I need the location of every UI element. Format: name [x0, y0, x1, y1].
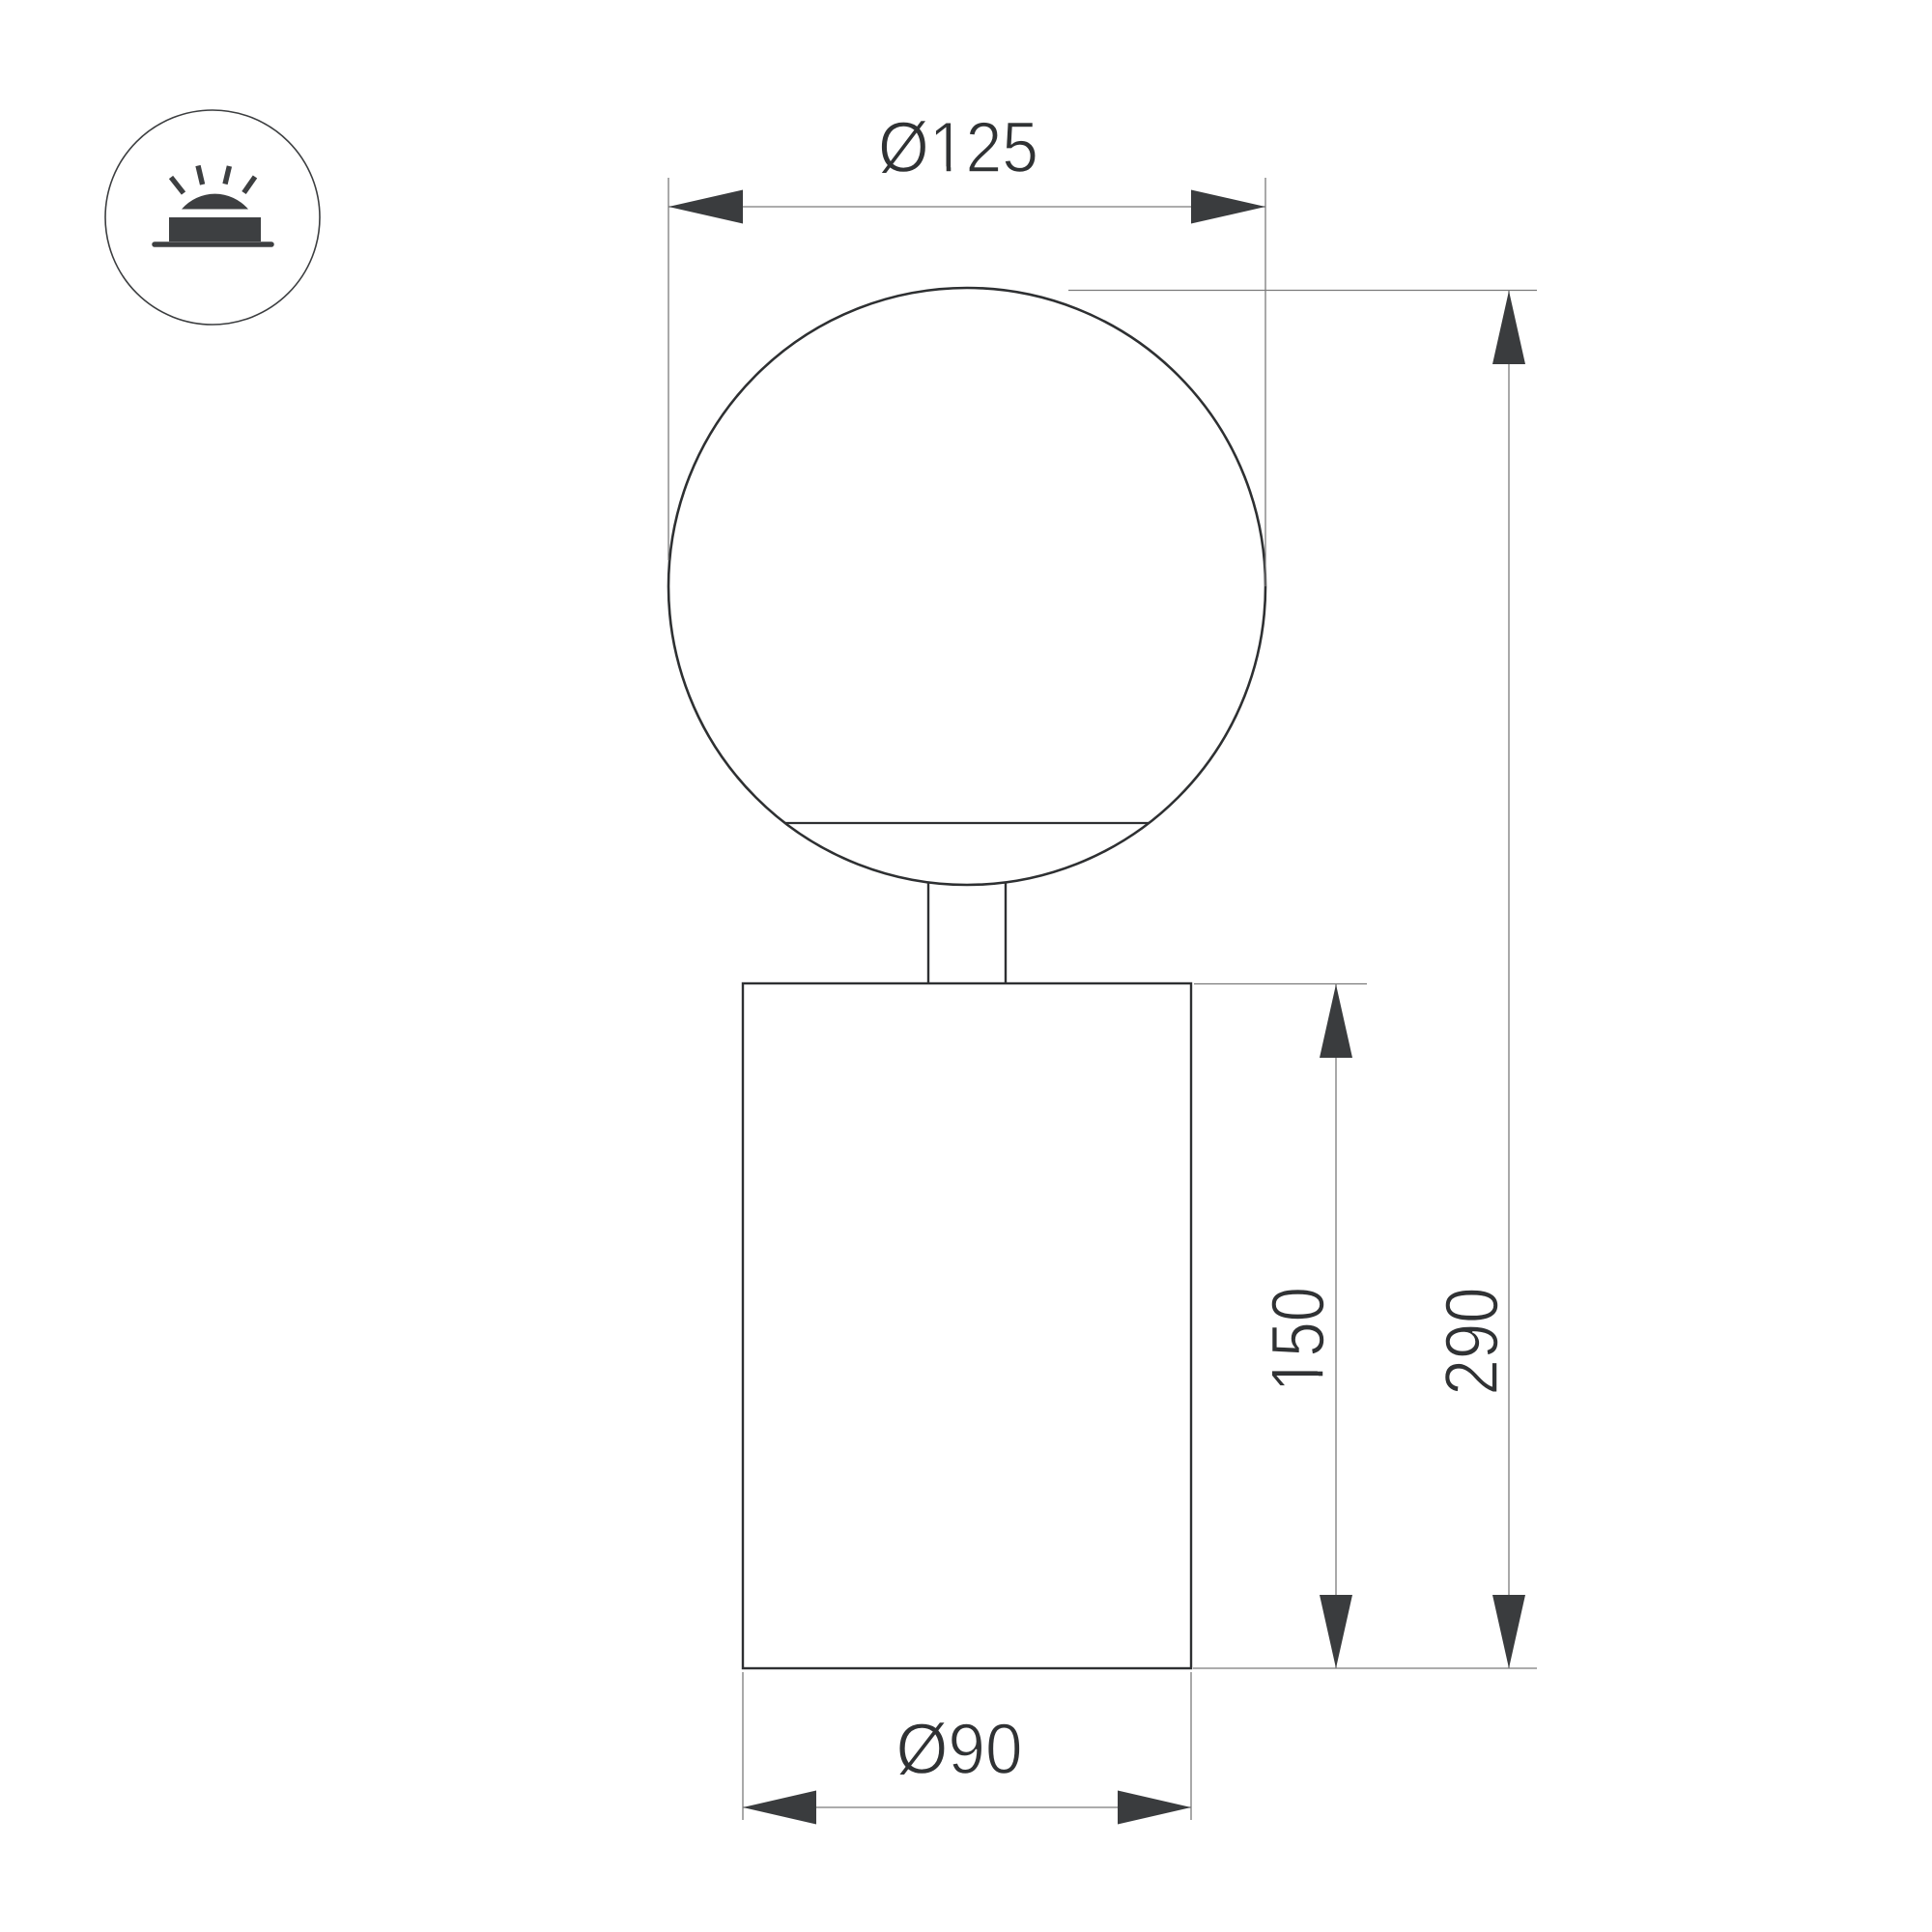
svg-text:Ø125: Ø125: [878, 107, 1038, 187]
svg-text:290: 290: [1429, 1288, 1514, 1396]
svg-text:150: 150: [1255, 1287, 1340, 1392]
svg-text:Ø90: Ø90: [896, 1709, 1023, 1789]
